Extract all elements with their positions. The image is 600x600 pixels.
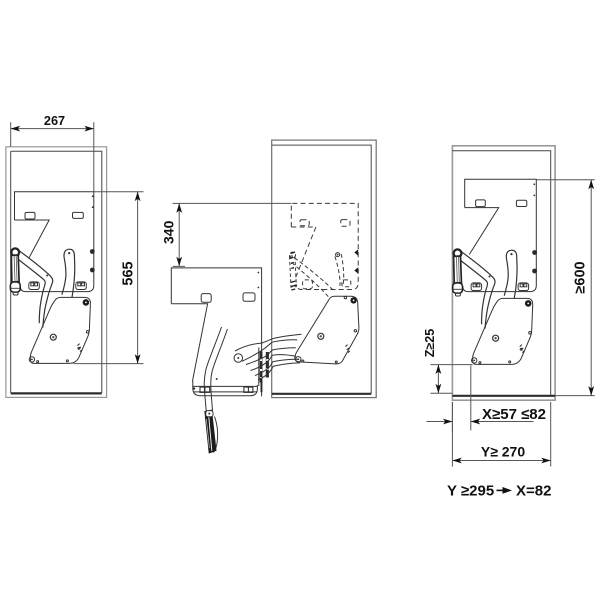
svg-text:565: 565 — [121, 261, 137, 285]
svg-text:Y≥ 270: Y≥ 270 — [481, 443, 525, 459]
svg-text:Y ≥295: Y ≥295 — [447, 482, 494, 499]
svg-text:X≥57 ≤82: X≥57 ≤82 — [482, 406, 546, 423]
svg-text:Z≥25: Z≥25 — [423, 329, 437, 357]
svg-text:≥600: ≥600 — [573, 261, 589, 293]
svg-text:X=82: X=82 — [516, 482, 551, 499]
svg-text:267: 267 — [44, 114, 65, 128]
svg-text:340: 340 — [160, 220, 176, 244]
